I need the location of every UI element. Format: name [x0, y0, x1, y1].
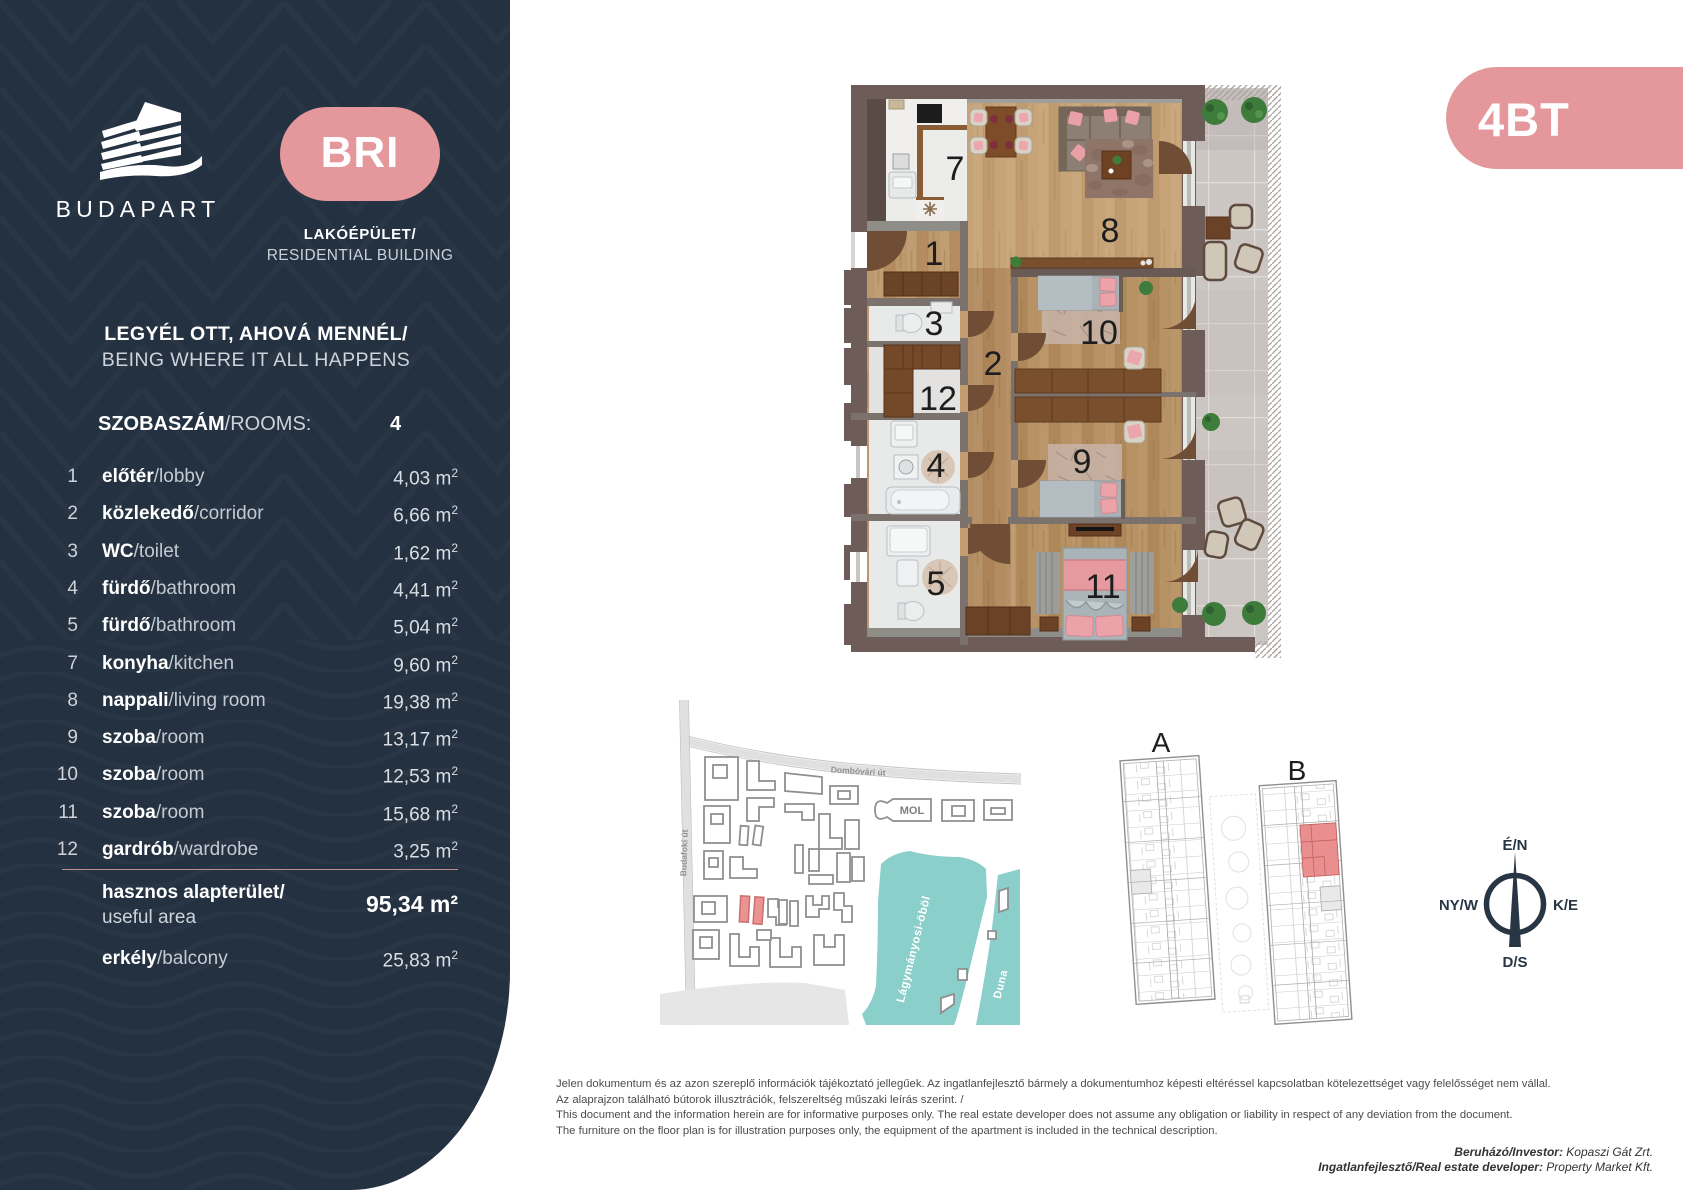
svg-text:B: B — [1288, 755, 1307, 786]
svg-text:12: 12 — [919, 380, 957, 418]
svg-text:A: A — [1152, 727, 1171, 758]
svg-text:9: 9 — [1073, 443, 1092, 481]
svg-text:É/N: É/N — [1502, 837, 1527, 854]
svg-text:NY/W: NY/W — [1440, 897, 1479, 914]
svg-text:Budafoki út: Budafoki út — [678, 829, 690, 876]
svg-text:2: 2 — [984, 345, 1003, 383]
svg-text:Dombóvári út: Dombóvári út — [831, 764, 886, 777]
svg-text:K/E: K/E — [1553, 897, 1578, 914]
svg-text:4: 4 — [927, 447, 946, 485]
svg-text:5: 5 — [927, 565, 946, 603]
svg-text:D/S: D/S — [1502, 954, 1527, 971]
svg-text:MOL: MOL — [900, 805, 925, 817]
svg-text:10: 10 — [1080, 314, 1118, 352]
svg-text:3: 3 — [925, 305, 944, 343]
svg-text:8: 8 — [1101, 212, 1120, 250]
svg-text:7: 7 — [946, 150, 965, 188]
svg-text:1: 1 — [925, 235, 944, 273]
svg-text:11: 11 — [1085, 568, 1120, 606]
